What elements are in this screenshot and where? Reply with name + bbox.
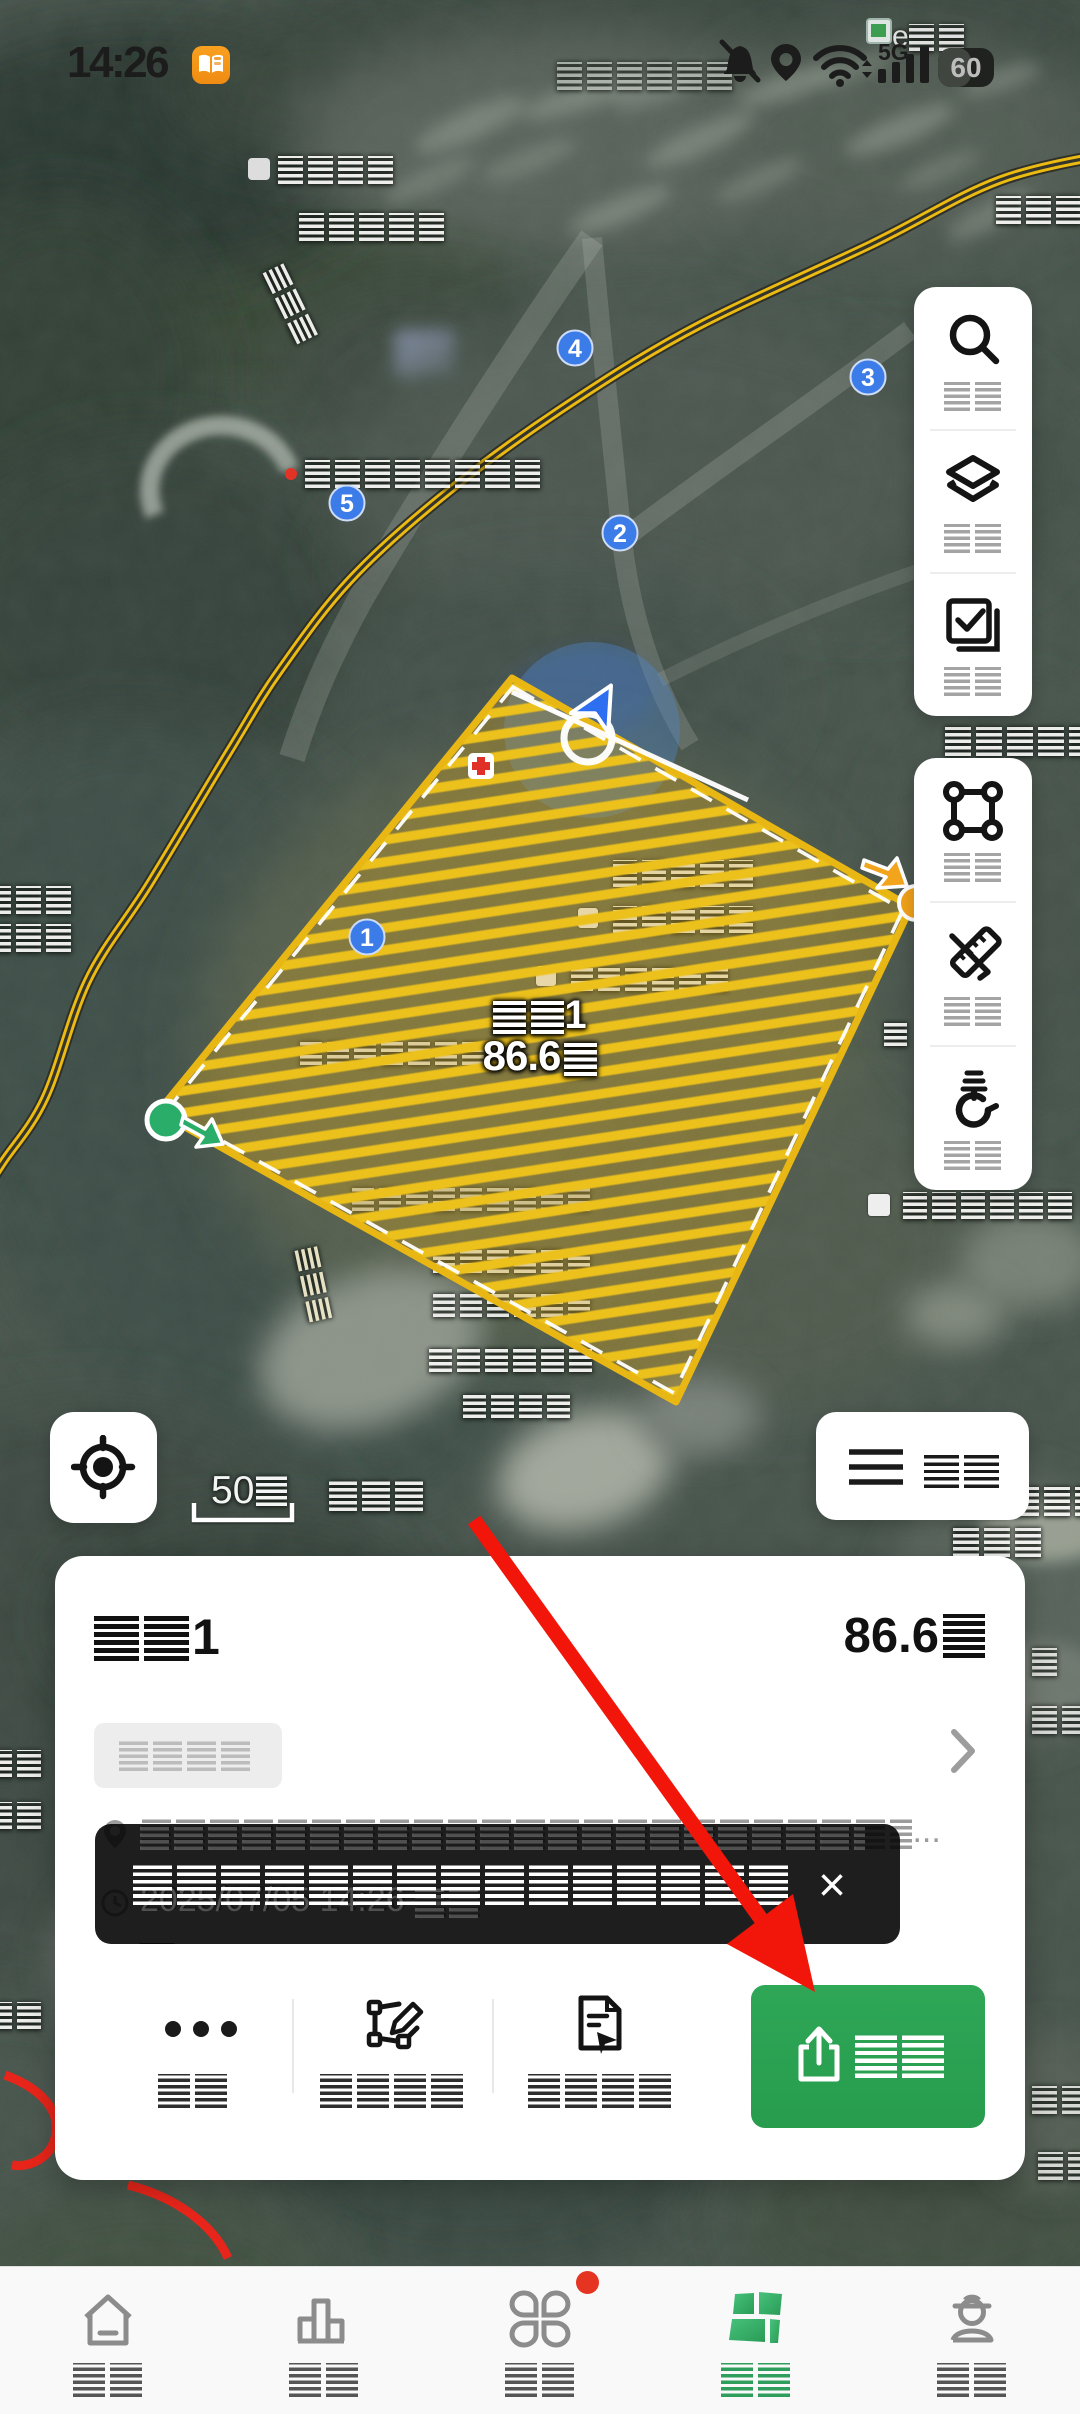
svg-text:60: 60 [950,52,981,83]
svg-text:1: 1 [360,924,374,952]
svg-text:3: 3 [861,364,875,392]
svg-text:5: 5 [340,490,354,518]
svg-text:5G: 5G [878,39,909,65]
svg-text:2: 2 [613,520,627,548]
svg-text:4: 4 [568,335,582,363]
